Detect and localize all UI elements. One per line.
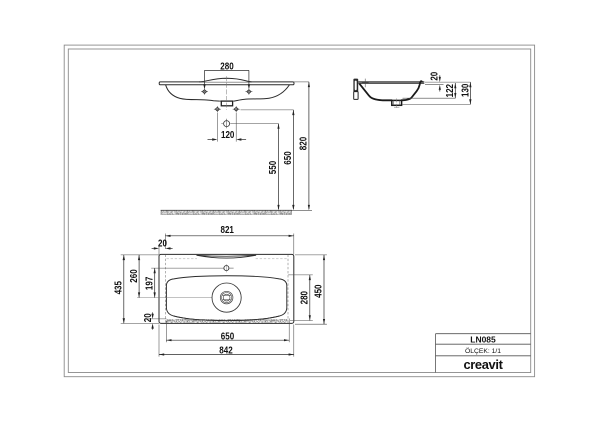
- svg-text:280: 280: [300, 291, 311, 305]
- svg-text:20: 20: [430, 71, 441, 80]
- svg-text:130: 130: [460, 83, 471, 97]
- svg-text:550: 550: [268, 161, 279, 175]
- svg-text:820: 820: [299, 137, 310, 151]
- svg-text:120: 120: [221, 130, 235, 141]
- svg-text:435: 435: [113, 281, 124, 295]
- svg-text:122: 122: [445, 84, 456, 98]
- svg-text:821: 821: [221, 225, 235, 236]
- svg-text:20: 20: [158, 239, 167, 250]
- svg-text:197: 197: [144, 276, 155, 290]
- svg-text:ÖLÇEK: 1/1: ÖLÇEK: 1/1: [465, 347, 501, 355]
- svg-text:260: 260: [129, 269, 140, 283]
- svg-text:650: 650: [283, 151, 294, 165]
- svg-text:842: 842: [219, 346, 233, 357]
- svg-text:creavit: creavit: [463, 357, 503, 372]
- svg-text:LN085: LN085: [470, 334, 496, 344]
- svg-text:650: 650: [221, 331, 235, 342]
- svg-text:280: 280: [220, 61, 234, 72]
- svg-text:20: 20: [143, 313, 154, 322]
- svg-text:450: 450: [314, 284, 325, 298]
